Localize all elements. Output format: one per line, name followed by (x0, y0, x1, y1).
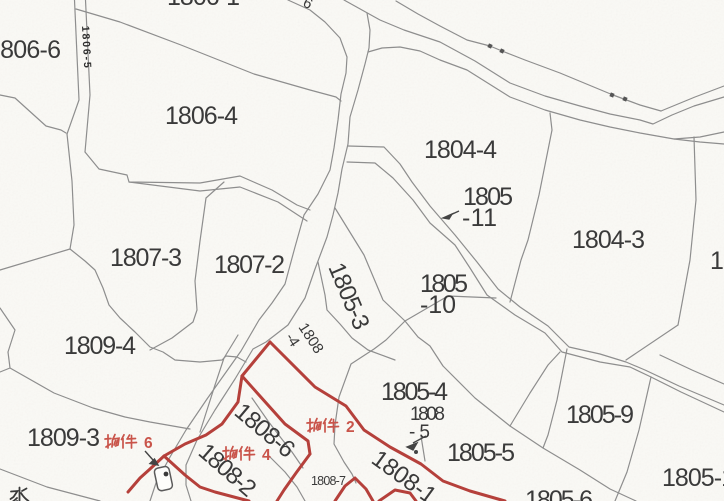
svg-text:1804-3: 1804-3 (572, 226, 644, 254)
svg-text:1807-2: 1807-2 (214, 251, 284, 279)
svg-text:1809-3: 1809-3 (27, 424, 99, 452)
svg-text:1: 1 (710, 247, 723, 275)
svg-text:4: 4 (262, 447, 271, 464)
svg-text:1806-1: 1806-1 (167, 0, 239, 11)
svg-text:1808-7: 1808-7 (311, 474, 346, 488)
svg-text:2: 2 (346, 419, 355, 436)
svg-text:-5: -5 (409, 422, 430, 443)
svg-text:1805-6: 1805-6 (525, 486, 592, 501)
svg-text:1804-4: 1804-4 (424, 136, 497, 164)
svg-text:1807-3: 1807-3 (110, 244, 181, 272)
svg-text:1805-9: 1805-9 (566, 401, 633, 429)
svg-text:-11: -11 (462, 204, 496, 232)
svg-text:1809-4: 1809-4 (64, 332, 136, 360)
svg-text:1806-4: 1806-4 (165, 102, 238, 130)
svg-text:1805-5: 1805-5 (447, 439, 514, 467)
svg-text:1805-4: 1805-4 (381, 378, 448, 406)
svg-text:1805-1: 1805-1 (662, 464, 724, 492)
svg-text:1806-6: 1806-6 (0, 36, 60, 64)
svg-text:6: 6 (144, 435, 153, 452)
svg-text:-10: -10 (420, 291, 455, 319)
